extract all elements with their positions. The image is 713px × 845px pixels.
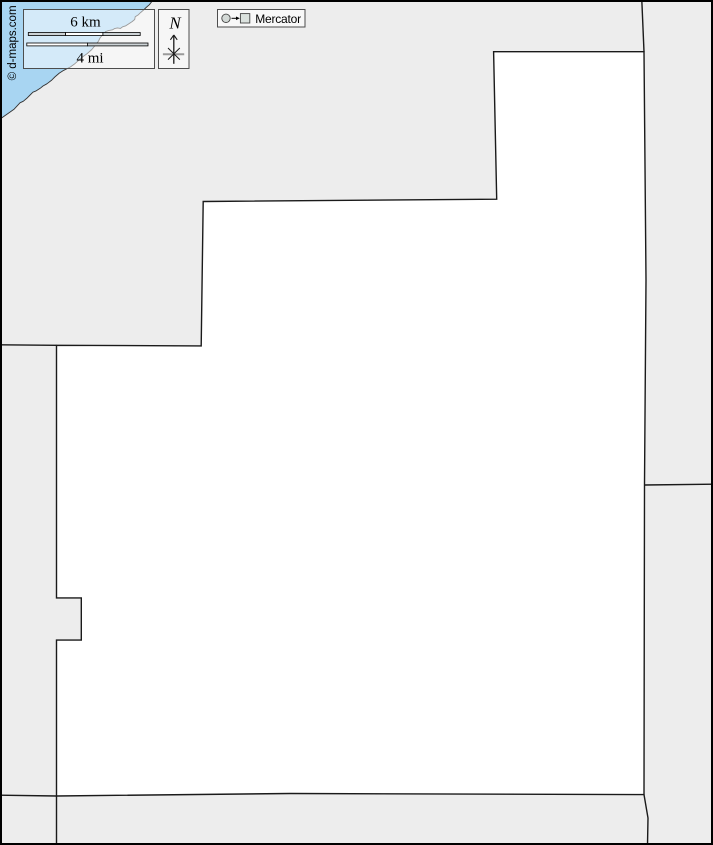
svg-text:© d-maps.com: © d-maps.com — [7, 5, 19, 80]
svg-text:Mercator: Mercator — [255, 12, 301, 26]
svg-text:4 mi: 4 mi — [76, 51, 103, 67]
svg-text:6 km: 6 km — [70, 15, 101, 31]
svg-text:N: N — [168, 14, 182, 33]
